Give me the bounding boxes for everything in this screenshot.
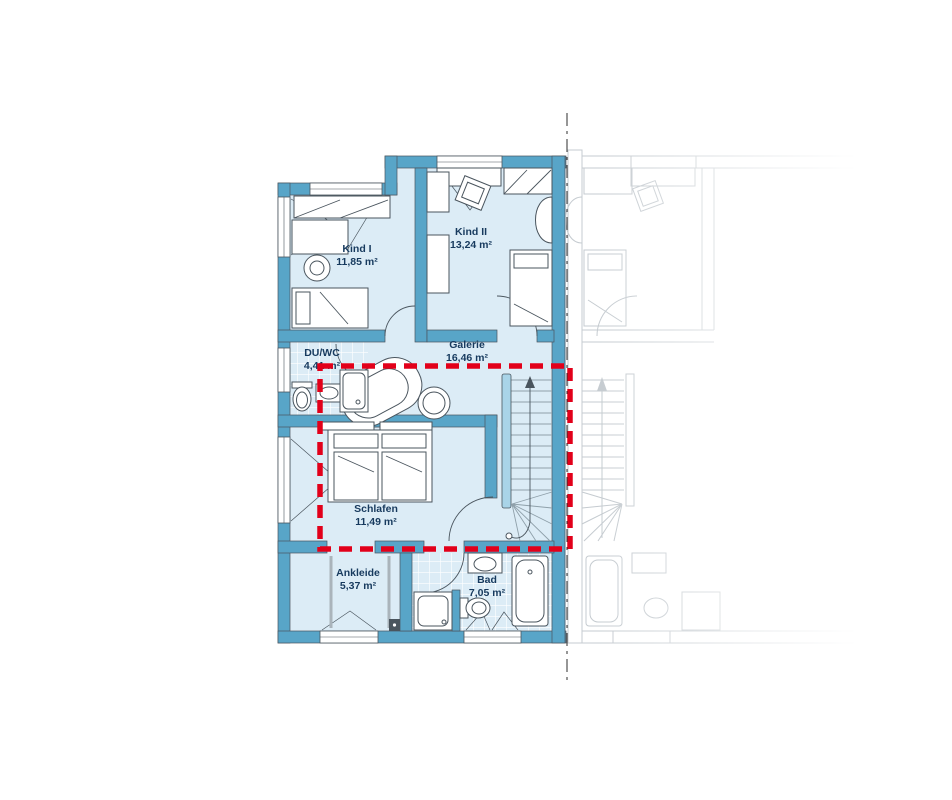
room-label-bad: Bad 7,05 m² [469,574,505,599]
room-name: Schlafen [354,503,398,516]
room-name: Galerie [446,339,488,352]
room-area: 13,24 m² [450,239,492,252]
room-name: Kind I [336,243,377,256]
room-name: Kind II [450,226,492,239]
room-label-kind2: Kind II 13,24 m² [450,226,492,251]
room-label-kind1: Kind I 11,85 m² [336,243,377,268]
floor-plan-drawing [0,0,952,800]
neighbor-fade [582,96,952,696]
room-area: 11,49 m² [354,516,398,529]
room-label-schlafen: Schlafen 11,49 m² [354,503,398,528]
furniture-schlafen [322,422,432,502]
room-label-galerie: Galerie 16,46 m² [446,339,488,364]
room-label-ankleide: Ankleide 5,37 m² [336,567,380,592]
floor-plan: Kind I 11,85 m² Kind II 13,24 m² Galerie… [0,0,952,800]
room-area: 4,41 m² [304,360,340,373]
room-name: Ankleide [336,567,380,580]
room-name: DU/WC [304,347,340,360]
room-name: Bad [469,574,505,587]
room-area: 5,37 m² [336,580,380,593]
room-label-duwc: DU/WC 4,41 m² [304,347,340,372]
room-area: 11,85 m² [336,256,377,269]
room-area: 7,05 m² [469,587,505,600]
room-area: 16,46 m² [446,352,488,365]
